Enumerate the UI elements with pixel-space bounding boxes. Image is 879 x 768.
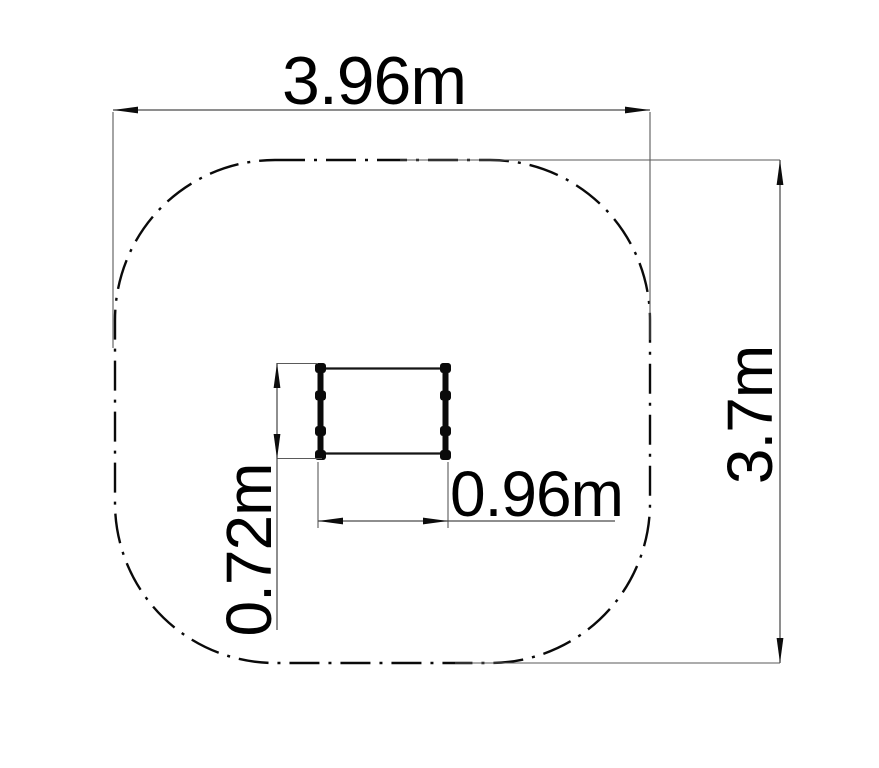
post-marker — [440, 363, 451, 373]
dimension-label-item-height: 0.72m — [213, 464, 285, 637]
arrowhead-right-icon — [423, 518, 448, 525]
equipment-plan — [315, 363, 451, 460]
post-marker — [440, 391, 451, 401]
post-marker — [315, 426, 326, 436]
arrowhead-up-icon — [777, 160, 784, 185]
plan-view-drawing: 3.96m 3.7m 0.72m 0.96m — [0, 0, 879, 768]
dimension-label-item-width: 0.96m — [450, 458, 623, 530]
arrowhead-down-icon — [274, 434, 281, 459]
dimension-item-height: 0.72m — [213, 363, 322, 636]
safety-zone-outline — [115, 160, 650, 663]
dimension-overall-width: 3.96m — [113, 43, 650, 348]
dimension-label-overall-height: 3.7m — [714, 346, 786, 484]
arrowhead-left-icon — [113, 107, 138, 114]
post-marker — [315, 363, 326, 373]
post-marker — [440, 426, 451, 436]
arrowhead-left-icon — [318, 518, 343, 525]
dimension-label-overall-width: 3.96m — [282, 43, 466, 119]
dimension-overall-height: 3.7m — [400, 160, 786, 663]
arrowhead-right-icon — [625, 107, 650, 114]
post-marker — [315, 391, 326, 401]
arrowhead-down-icon — [777, 638, 784, 663]
arrowhead-up-icon — [274, 363, 281, 388]
dimension-item-width: 0.96m — [318, 458, 623, 530]
technical-drawing-canvas: 3.96m 3.7m 0.72m 0.96m — [0, 0, 879, 768]
